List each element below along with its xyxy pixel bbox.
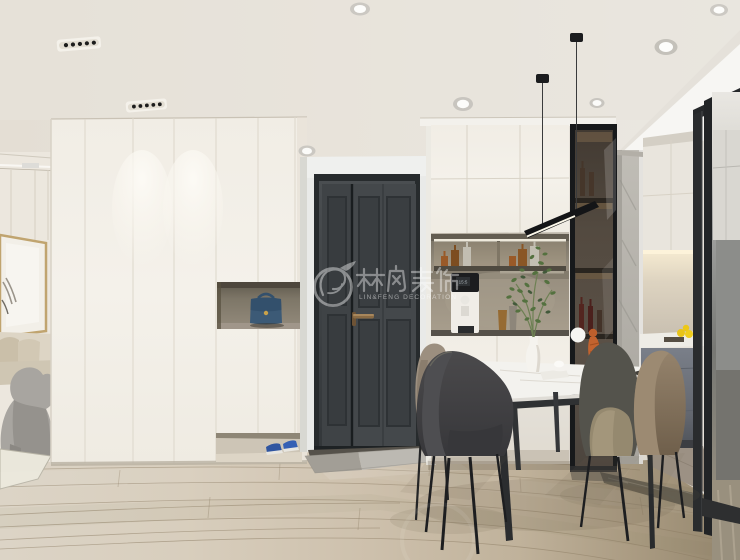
svg-text:LIN&FENG DECORATION: LIN&FENG DECORATION: [359, 294, 457, 301]
svg-text:15:5: 15:5: [459, 280, 468, 285]
